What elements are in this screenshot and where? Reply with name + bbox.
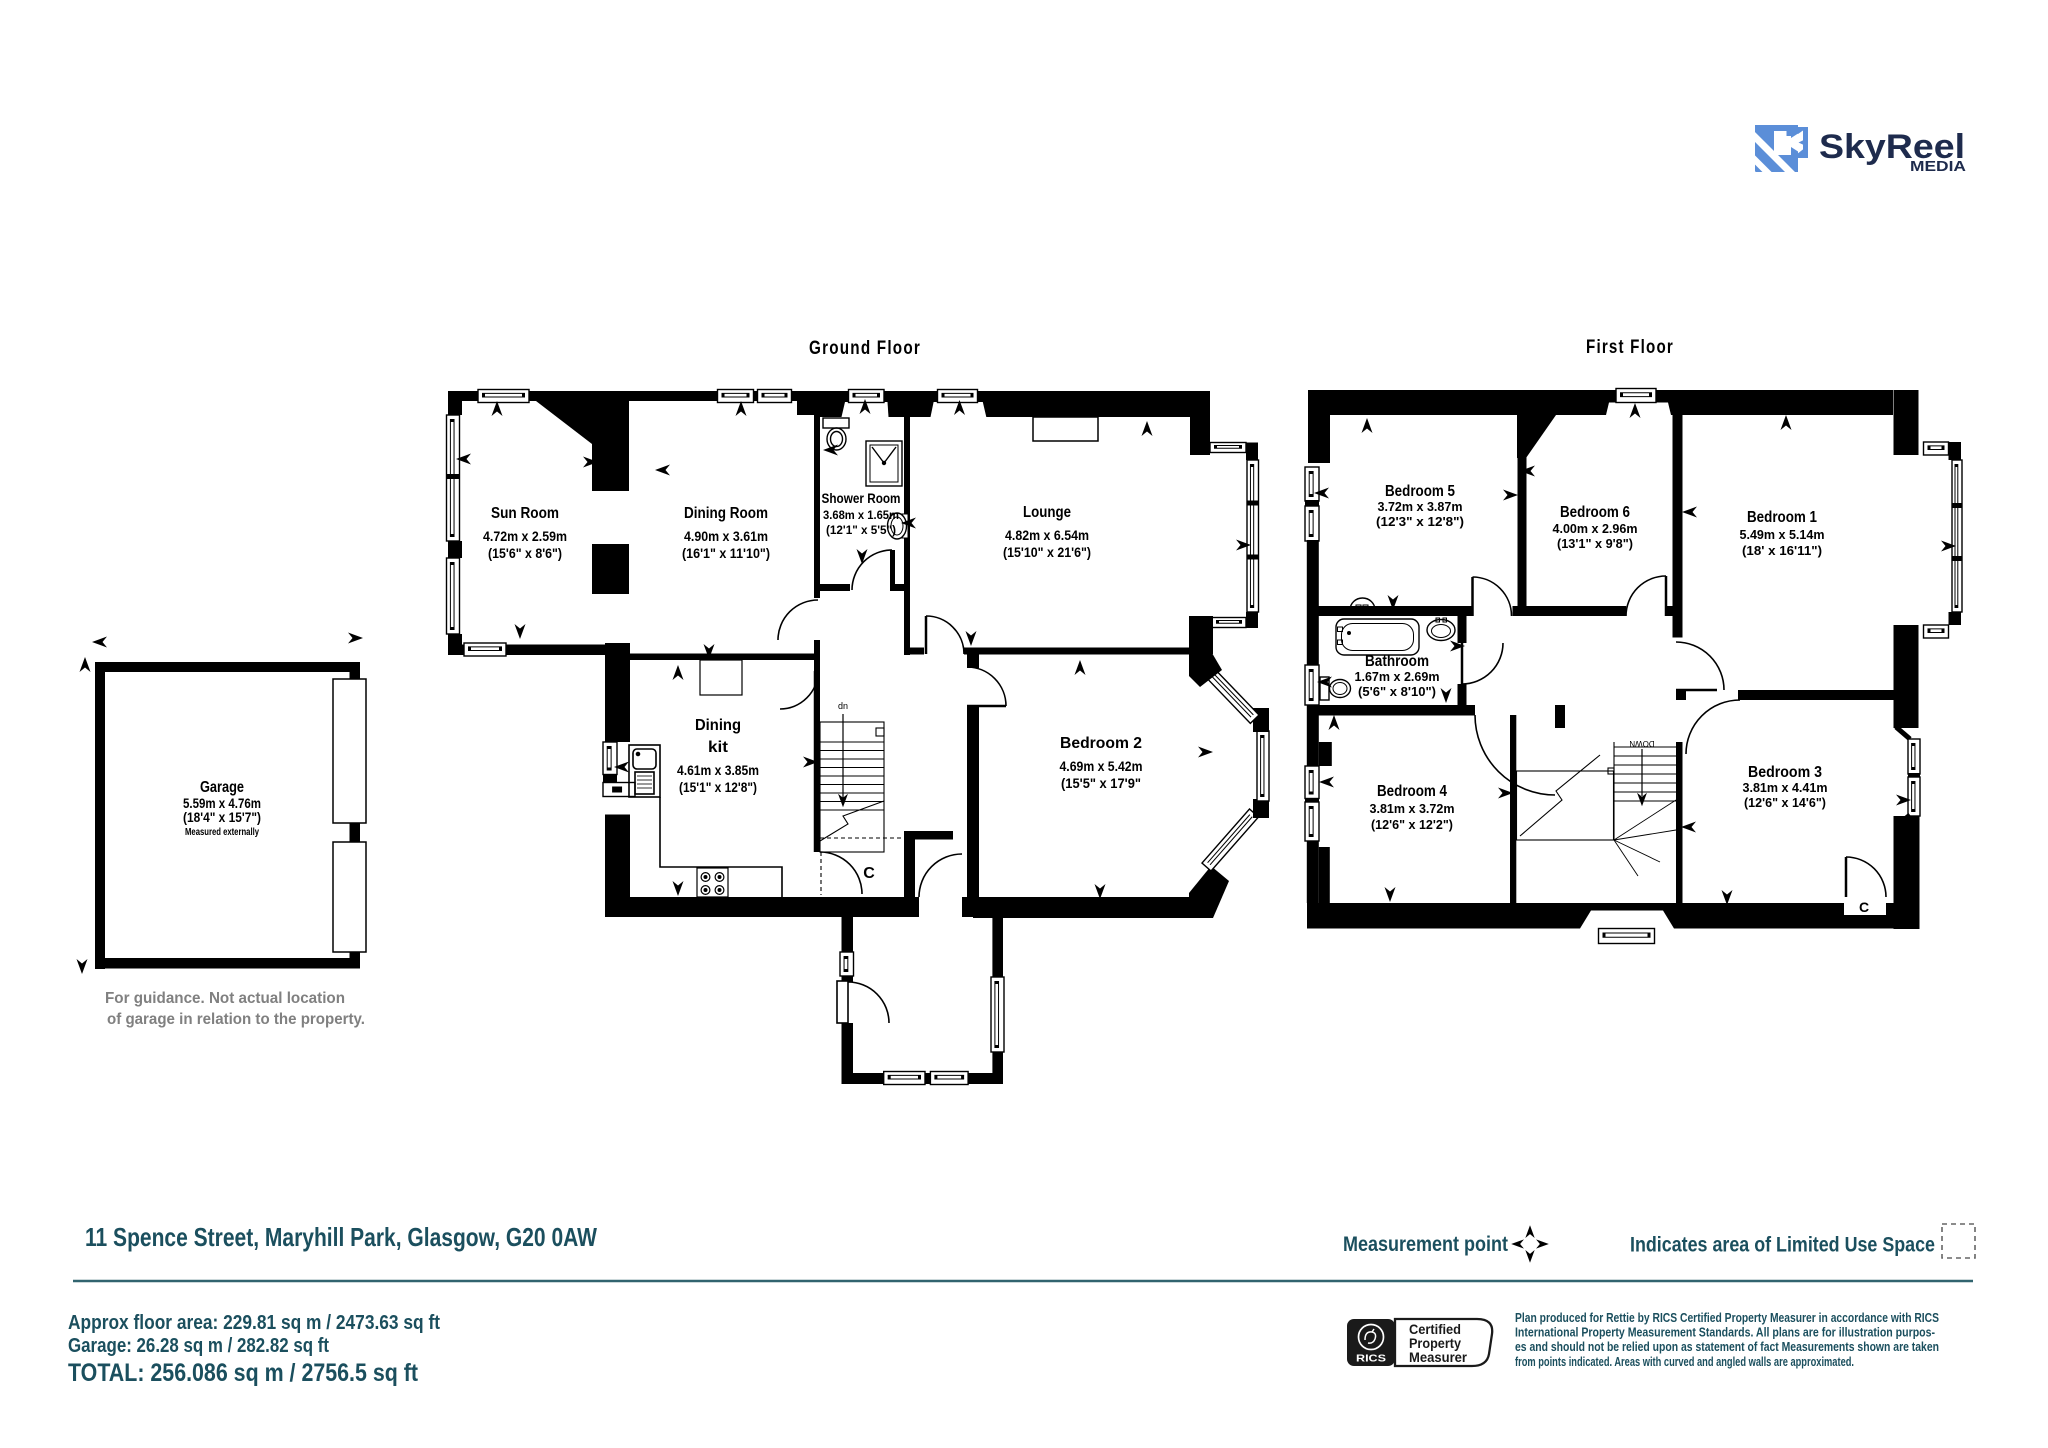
svg-text:3.81m x 3.72m: 3.81m x 3.72m <box>1370 801 1455 816</box>
svg-text:Bedroom 6: Bedroom 6 <box>1560 504 1630 521</box>
svg-text:C: C <box>1859 899 1869 915</box>
svg-text:(5'6" x 8'10"): (5'6" x 8'10") <box>1358 684 1436 699</box>
svg-text:First Floor: First Floor <box>1586 337 1674 358</box>
svg-text:Measurement point: Measurement point <box>1343 1233 1508 1256</box>
svg-text:from points indicated. Areas w: from points indicated. Areas with curved… <box>1515 1354 1854 1369</box>
svg-text:Measured externally: Measured externally <box>185 826 259 838</box>
svg-text:Lounge: Lounge <box>1023 504 1071 521</box>
svg-text:4.61m x 3.85m: 4.61m x 3.85m <box>677 763 759 778</box>
svg-text:MEDIA: MEDIA <box>1910 159 1967 175</box>
svg-text:4.90m x 3.61m: 4.90m x 3.61m <box>684 529 768 544</box>
svg-text:Certified: Certified <box>1409 1322 1461 1337</box>
svg-text:Garage: Garage <box>200 779 244 796</box>
svg-text:of garage in relation to the p: of garage in relation to the property. <box>107 1011 365 1028</box>
svg-text:(12'6" x 12'2"): (12'6" x 12'2") <box>1371 817 1453 832</box>
svg-text:Bathroom: Bathroom <box>1365 653 1429 670</box>
svg-text:Bedroom 5: Bedroom 5 <box>1385 483 1455 500</box>
svg-text:Property: Property <box>1409 1336 1461 1351</box>
svg-text:4.82m x 6.54m: 4.82m x 6.54m <box>1005 528 1089 543</box>
svg-text:es and should not be relied up: es and should not be relied upon as stat… <box>1515 1339 1939 1354</box>
svg-text:(13'1" x 9'8"): (13'1" x 9'8") <box>1557 536 1633 551</box>
svg-text:(18' x 16'11"): (18' x 16'11") <box>1742 543 1822 558</box>
svg-text:Bedroom 3: Bedroom 3 <box>1748 764 1822 781</box>
svg-text:(12'3" x 12'8"): (12'3" x 12'8") <box>1376 514 1464 529</box>
svg-text:Shower Room: Shower Room <box>822 490 901 506</box>
svg-text:DOWN: DOWN <box>1629 739 1655 748</box>
svg-text:Indicates area of Limited Use: Indicates area of Limited Use Space <box>1630 1234 1935 1257</box>
svg-text:For guidance. Not actual locat: For guidance. Not actual location <box>105 990 345 1007</box>
svg-text:International Property Measur: International Property Measurement Stand… <box>1515 1325 1935 1340</box>
svg-text:3.72m x 3.87m: 3.72m x 3.87m <box>1378 499 1463 514</box>
svg-text:3.68m x 1.65m: 3.68m x 1.65m <box>823 508 899 522</box>
svg-text:Bedroom 4: Bedroom 4 <box>1377 783 1447 800</box>
svg-text:Bedroom 2: Bedroom 2 <box>1060 735 1142 752</box>
svg-text:kit: kit <box>708 739 729 756</box>
svg-text:4.69m x 5.42m: 4.69m x 5.42m <box>1060 759 1143 774</box>
svg-text:Dining: Dining <box>695 717 741 734</box>
svg-text:RICS: RICS <box>1356 1353 1386 1365</box>
svg-text:Plan produced for Rettie by RI: Plan produced for Rettie by RICS Certifi… <box>1515 1310 1939 1325</box>
svg-text:Bedroom 1: Bedroom 1 <box>1747 509 1817 526</box>
svg-text:(15'1" x 12'8"): (15'1" x 12'8") <box>679 780 757 795</box>
svg-text:Sun Room: Sun Room <box>491 505 559 522</box>
svg-text:1.67m x 2.69m: 1.67m x 2.69m <box>1355 669 1440 684</box>
svg-text:Ground Floor: Ground Floor <box>809 338 921 359</box>
svg-text:(15'6" x 8'6"): (15'6" x 8'6") <box>488 546 562 561</box>
svg-text:5.49m x 5.14m: 5.49m x 5.14m <box>1740 527 1825 542</box>
svg-text:3.81m x 4.41m: 3.81m x 4.41m <box>1743 780 1828 795</box>
svg-text:Measurer: Measurer <box>1409 1350 1468 1365</box>
svg-text:Approx floor area: 229.81 sq m: Approx floor area: 229.81 sq m / 2473.63… <box>68 1312 440 1334</box>
svg-text:(15'10" x 21'6"): (15'10" x 21'6") <box>1003 545 1091 560</box>
svg-text:5.59m x 4.76m: 5.59m x 4.76m <box>183 796 261 811</box>
svg-text:(12'6" x 14'6"): (12'6" x 14'6") <box>1744 795 1826 810</box>
svg-text:(15'5" x 17'9": (15'5" x 17'9" <box>1061 776 1141 791</box>
svg-text:(12'1" x 5'5"): (12'1" x 5'5") <box>826 523 896 537</box>
svg-text:Dining Room: Dining Room <box>684 505 768 522</box>
svg-text:(18'4" x 15'7"): (18'4" x 15'7") <box>183 810 261 825</box>
svg-text:Garage: 26.28 sq m / 282.82 sq: Garage: 26.28 sq m / 282.82 sq ft <box>68 1335 329 1357</box>
svg-text:4.72m x 2.59m: 4.72m x 2.59m <box>483 529 567 544</box>
svg-text:(16'1" x 11'10"): (16'1" x 11'10") <box>682 546 770 561</box>
svg-text:11 Spence Street, Maryhill Par: 11 Spence Street, Maryhill Park, Glasgow… <box>85 1222 597 1252</box>
svg-text:TOTAL: 256.086 sq m / 2756.5 s: TOTAL: 256.086 sq m / 2756.5 sq ft <box>68 1359 419 1387</box>
svg-text:4.00m x 2.96m: 4.00m x 2.96m <box>1553 521 1638 536</box>
svg-text:up: up <box>838 702 848 712</box>
svg-text:C: C <box>863 865 875 882</box>
